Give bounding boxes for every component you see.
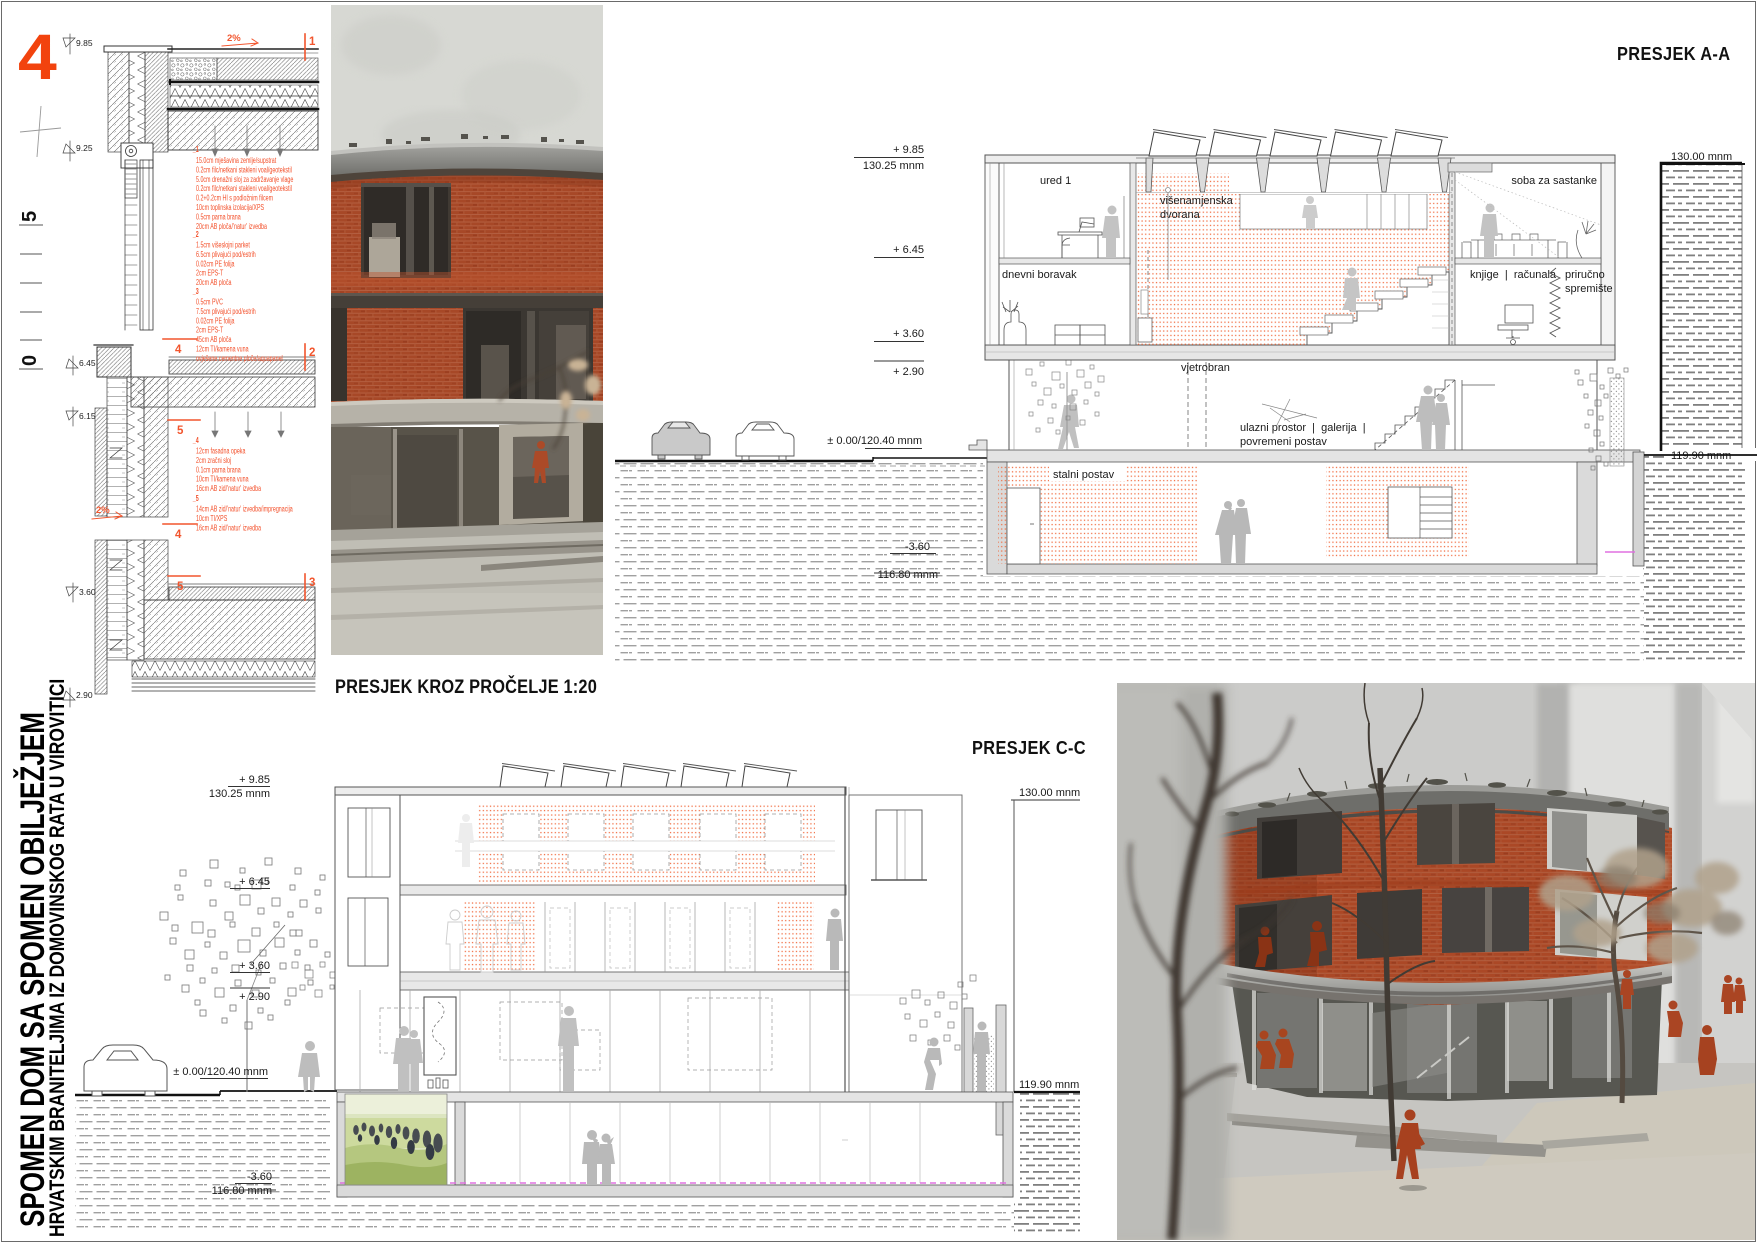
svg-text:3.60: 3.60 [79, 587, 96, 597]
svg-text:5: 5 [177, 581, 184, 593]
svg-text:1: 1 [309, 36, 316, 48]
svg-text:dnevni boravak: dnevni boravak [1002, 269, 1077, 281]
svg-text:9.85: 9.85 [76, 38, 93, 48]
svg-text:6.5cm plivajući pod/estrih: 6.5cm plivajući pod/estrih [196, 251, 256, 259]
svg-text:+ 3.60: + 3.60 [893, 328, 924, 340]
svg-text:soba za sastanke: soba za sastanke [1511, 175, 1597, 187]
svg-text:20cm AB ploča: 20cm AB ploča [196, 279, 232, 287]
svg-text:_3: _3 [192, 288, 199, 296]
svg-text:+ 2.90: + 2.90 [239, 991, 270, 1003]
svg-text:povremeni postav: povremeni postav [1240, 436, 1327, 448]
svg-text:ulazni prostor | galerija |: ulazni prostor | galerija | [1240, 422, 1366, 434]
svg-text:20cm AB ploča/'natur' izvedba: 20cm AB ploča/'natur' izvedba [196, 223, 267, 231]
svg-text:116.80 mnm: 116.80 mnm [878, 569, 938, 581]
svg-text:priručno: priručno [1565, 269, 1605, 281]
svg-text:višenamjenska: višenamjenska [1160, 195, 1234, 207]
svg-text:4: 4 [175, 344, 182, 356]
svg-text:2%: 2% [96, 505, 110, 516]
svg-text:vjetrobran: vjetrobran [1181, 362, 1230, 374]
svg-text:0.2cm filc/netkani stakleni vo: 0.2cm filc/netkani stakleni voal/geoteks… [196, 166, 292, 174]
svg-text:10cm TI/XPS: 10cm TI/XPS [196, 515, 228, 523]
svg-text:0.02cm PE folija: 0.02cm PE folija [196, 260, 235, 268]
svg-text:10cm toplinska izolacija/XPS: 10cm toplinska izolacija/XPS [196, 204, 264, 212]
svg-text:spremište: spremište [1565, 283, 1613, 295]
svg-text:2cm EPS-T: 2cm EPS-T [196, 327, 224, 335]
svg-text:0: 0 [19, 355, 41, 366]
svg-text:+ 2.90: + 2.90 [893, 366, 924, 378]
svg-text:14cm AB zid/'natur' izvedba/im: 14cm AB zid/'natur' izvedba/impregnacija [196, 506, 293, 514]
svg-text:16cm AB zid/'natur' izvedba: 16cm AB zid/'natur' izvedba [196, 524, 261, 532]
svg-text:2: 2 [309, 347, 315, 359]
svg-text:_2: _2 [192, 231, 199, 239]
svg-text:12cm fasadna opeka: 12cm fasadna opeka [196, 448, 246, 456]
svg-text:+ 3.60: + 3.60 [239, 960, 270, 972]
svg-text:_4: _4 [192, 437, 199, 445]
svg-text:_5: _5 [192, 495, 199, 503]
svg-text:ured 1: ured 1 [1040, 175, 1071, 187]
svg-text:0.2cm filc/netkani stakleni vo: 0.2cm filc/netkani stakleni voal/geoteks… [196, 185, 292, 193]
svg-text:12cm TI/kamena vuna: 12cm TI/kamena vuna [196, 346, 249, 354]
svg-text:1.5cm višeslojni parket: 1.5cm višeslojni parket [196, 242, 250, 250]
svg-text:± 0.00/120.40 mnm: ± 0.00/120.40 mnm [173, 1066, 268, 1078]
svg-text:5: 5 [19, 211, 41, 222]
svg-text:-3.60: -3.60 [247, 1171, 272, 1183]
svg-text:stalni postav: stalni postav [1053, 469, 1115, 481]
svg-text:0.5cm parna brana: 0.5cm parna brana [196, 213, 241, 221]
svg-text:9.25: 9.25 [76, 143, 93, 153]
svg-text:116.80 mnm: 116.80 mnm [212, 1185, 272, 1197]
svg-text:3: 3 [309, 577, 315, 589]
svg-text:0.5cm PVC: 0.5cm PVC [196, 299, 223, 307]
svg-text:130.25 mnm: 130.25 mnm [209, 788, 270, 800]
svg-text:2%: 2% [227, 33, 241, 44]
svg-text:130.00 mnm: 130.00 mnm [1019, 787, 1080, 799]
svg-text:10cm TI/kamena vuna: 10cm TI/kamena vuna [196, 476, 249, 484]
svg-text:+ 6.45: + 6.45 [893, 244, 924, 256]
svg-text:45cm AB ploča: 45cm AB ploča [196, 336, 232, 344]
svg-text:dvorana: dvorana [1160, 209, 1201, 221]
svg-text:7.5cm plivajući pod/estrih: 7.5cm plivajući pod/estrih [196, 308, 256, 316]
svg-text:_1: _1 [192, 146, 199, 154]
svg-text:+ 6.45: + 6.45 [239, 876, 270, 888]
svg-text:4: 4 [175, 529, 182, 541]
svg-text:knjige | računala: knjige | računala [1470, 269, 1557, 281]
svg-text:130.00 mnm: 130.00 mnm [1671, 151, 1732, 163]
svg-text:119.90 mnm: 119.90 mnm [1671, 450, 1731, 462]
svg-text:2cm EPS-T: 2cm EPS-T [196, 270, 224, 278]
svg-text:0.2+0.2cm HI s podložnim filce: 0.2+0.2cm HI s podložnim filcem [196, 195, 273, 203]
svg-text:16cm AB zid/'natur' izvedba: 16cm AB zid/'natur' izvedba [196, 485, 261, 493]
svg-text:-3.60: -3.60 [905, 541, 930, 553]
svg-text:2.90: 2.90 [76, 690, 93, 700]
svg-text:6.45: 6.45 [79, 358, 96, 368]
svg-text:2cm zračni sloj: 2cm zračni sloj [196, 457, 232, 465]
svg-text:119.90 mnm: 119.90 mnm [1019, 1079, 1079, 1091]
svg-text:+ 9.85: + 9.85 [239, 774, 270, 786]
svg-text:5: 5 [177, 425, 184, 437]
svg-text:± 0.00/120.40 mnm: ± 0.00/120.40 mnm [827, 435, 922, 447]
svg-text:+ 9.85: + 9.85 [893, 144, 924, 156]
svg-text:0.1cm parna brana: 0.1cm parna brana [196, 466, 241, 474]
svg-text:6.15: 6.15 [79, 411, 96, 421]
svg-text:15.0cm mješavina zemlje/supstr: 15.0cm mješavina zemlje/supstrat [196, 157, 276, 165]
svg-text:130.25 mnm: 130.25 mnm [863, 160, 924, 172]
svg-text:0.02cm PE folija: 0.02cm PE folija [196, 317, 235, 325]
svg-text:5.0cm drenažni sloj za zadržav: 5.0cm drenažni sloj za zadržavanje vlage [196, 176, 293, 184]
svg-text:ovješene cementne ploče/aquapa: ovješene cementne ploče/aquapanel [196, 355, 283, 363]
